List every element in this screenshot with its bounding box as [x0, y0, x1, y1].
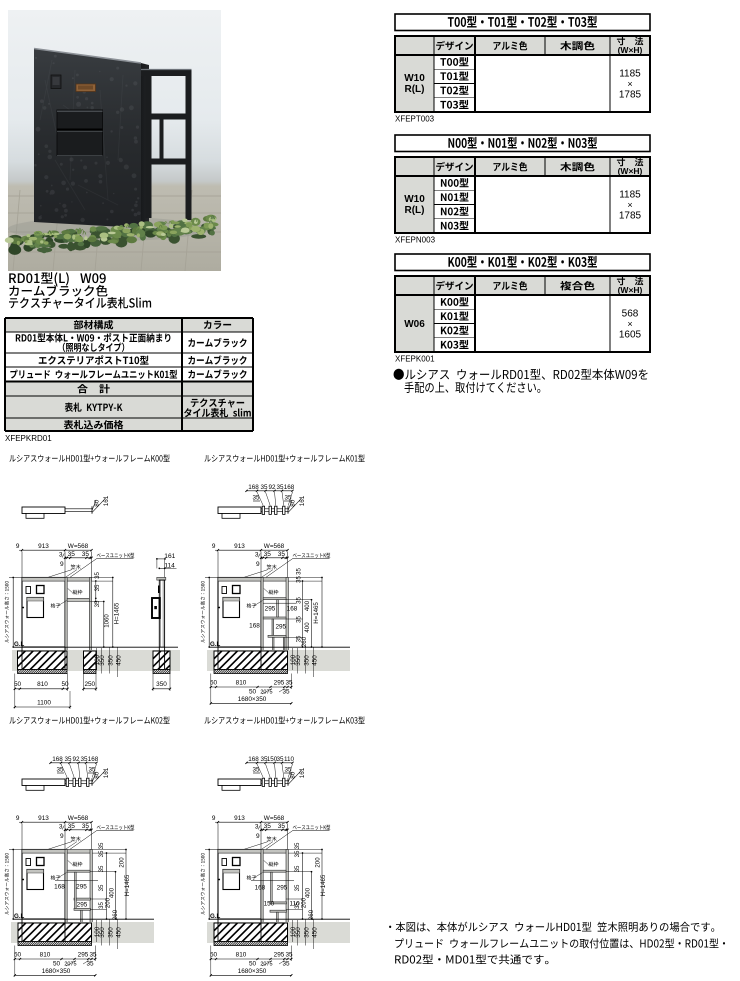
svg-text:161: 161: [299, 767, 306, 778]
svg-text:450: 450: [115, 655, 122, 666]
svg-text:35: 35: [285, 680, 293, 687]
svg-text:35: 35: [82, 823, 90, 830]
svg-text:H=1465: H=1465: [320, 874, 327, 896]
svg-text:350: 350: [303, 927, 310, 938]
svg-text:450: 450: [115, 927, 122, 938]
svg-text:168: 168: [287, 606, 298, 613]
svg-text:810: 810: [37, 681, 48, 688]
svg-text:200: 200: [105, 897, 112, 908]
svg-text:9: 9: [212, 543, 216, 550]
svg-text:35: 35: [294, 842, 301, 849]
svg-text:35: 35: [294, 865, 301, 872]
svg-text:H=1465: H=1465: [124, 874, 131, 896]
svg-text:295: 295: [274, 952, 285, 959]
svg-text:350: 350: [156, 681, 167, 688]
svg-text:35: 35: [86, 961, 94, 968]
svg-text:50: 50: [210, 952, 218, 959]
svg-text:35: 35: [98, 850, 105, 857]
svg-text:161: 161: [103, 495, 110, 506]
svg-text:9: 9: [16, 815, 20, 822]
svg-text:9: 9: [256, 833, 260, 840]
svg-text:913: 913: [38, 815, 49, 822]
svg-text:2075: 2075: [64, 962, 76, 968]
svg-text:(W×H): (W×H): [618, 285, 643, 295]
svg-text:168: 168: [249, 623, 260, 630]
svg-text:161: 161: [299, 495, 306, 506]
svg-text:W=568: W=568: [264, 815, 285, 822]
svg-text:350: 350: [99, 655, 106, 666]
svg-text:50: 50: [14, 952, 22, 959]
svg-text:×: ×: [627, 79, 632, 89]
svg-text:295: 295: [277, 885, 288, 892]
svg-text:400: 400: [304, 622, 311, 633]
svg-text:9: 9: [60, 833, 64, 840]
svg-text:568: 568: [622, 309, 639, 320]
svg-text:G.L: G.L: [14, 641, 25, 648]
svg-text:50: 50: [249, 689, 257, 696]
svg-text:295: 295: [76, 884, 87, 891]
svg-text:913: 913: [234, 815, 245, 822]
svg-text:200: 200: [301, 897, 308, 908]
svg-text:1605: 1605: [619, 330, 642, 341]
svg-text:50: 50: [14, 681, 22, 688]
svg-text:35: 35: [98, 842, 105, 849]
svg-text:35: 35: [64, 756, 72, 763]
svg-text:G.L: G.L: [210, 913, 221, 920]
svg-text:35: 35: [295, 568, 302, 575]
svg-text:260: 260: [301, 636, 308, 647]
svg-text:161: 161: [164, 553, 175, 560]
svg-text:G.L: G.L: [210, 641, 221, 648]
svg-text:1680×350: 1680×350: [238, 696, 267, 703]
svg-text:35: 35: [294, 850, 301, 857]
svg-text:35: 35: [284, 495, 292, 502]
svg-text:350: 350: [99, 927, 106, 938]
svg-text:35: 35: [295, 597, 302, 604]
svg-text:35: 35: [68, 551, 76, 558]
svg-text:400: 400: [305, 887, 312, 898]
svg-text:H=1465: H=1465: [114, 602, 121, 624]
svg-text:35: 35: [278, 551, 286, 558]
svg-text:35: 35: [284, 767, 292, 774]
svg-text:1100: 1100: [37, 700, 51, 707]
svg-text:35: 35: [82, 551, 90, 558]
svg-text:913: 913: [38, 543, 49, 550]
svg-text:200: 200: [119, 857, 126, 868]
svg-text:35: 35: [98, 865, 105, 872]
svg-text:35: 35: [260, 484, 268, 491]
svg-text:1060: 1060: [104, 614, 111, 628]
svg-text:G.L: G.L: [14, 913, 25, 920]
svg-text:450: 450: [311, 655, 318, 666]
svg-text:250: 250: [84, 681, 95, 688]
svg-text:XFEPN003: XFEPN003: [395, 236, 436, 245]
svg-text:2075: 2075: [260, 962, 272, 968]
svg-text:35: 35: [282, 689, 290, 696]
svg-text:(W×H): (W×H): [618, 45, 643, 55]
svg-text:350: 350: [295, 927, 302, 938]
svg-text:35: 35: [264, 823, 272, 830]
svg-text:9: 9: [256, 561, 260, 568]
svg-text:161: 161: [103, 767, 110, 778]
svg-text:200: 200: [315, 857, 322, 868]
svg-text:80: 80: [94, 499, 101, 507]
svg-text:35: 35: [94, 600, 101, 607]
svg-text:35: 35: [295, 616, 302, 623]
svg-text:400: 400: [109, 887, 116, 898]
svg-text:810: 810: [236, 680, 247, 687]
svg-text:35: 35: [88, 767, 96, 774]
svg-text:295: 295: [274, 680, 285, 687]
svg-text:35: 35: [294, 902, 301, 909]
svg-text:W10: W10: [404, 194, 425, 205]
svg-text:350: 350: [107, 655, 114, 666]
svg-text:450: 450: [311, 927, 318, 938]
svg-text:168: 168: [54, 884, 65, 891]
svg-text:35: 35: [98, 884, 105, 891]
svg-text:1785: 1785: [619, 211, 642, 222]
svg-text:35: 35: [94, 572, 101, 579]
svg-text:XFEPKRD01: XFEPKRD01: [5, 434, 52, 443]
svg-text:1185: 1185: [619, 69, 641, 80]
svg-text:R(L): R(L): [405, 84, 425, 95]
svg-text:35: 35: [282, 961, 290, 968]
svg-text:50: 50: [53, 961, 61, 968]
svg-text:XFEPK001: XFEPK001: [395, 355, 435, 364]
svg-text:350: 350: [107, 927, 114, 938]
svg-text:9: 9: [212, 815, 216, 822]
svg-text:295: 295: [77, 902, 88, 909]
svg-text:(W×H): (W×H): [618, 166, 643, 176]
svg-text:H=1465: H=1465: [313, 602, 320, 624]
svg-text:W=568: W=568: [68, 543, 89, 550]
svg-text:50: 50: [249, 961, 257, 968]
svg-text:1680×350: 1680×350: [42, 968, 71, 975]
svg-text:1680×350: 1680×350: [238, 968, 267, 975]
svg-text:35: 35: [94, 584, 101, 591]
svg-text:×: ×: [627, 319, 632, 329]
svg-text:2075: 2075: [260, 690, 272, 696]
svg-text:35: 35: [68, 823, 76, 830]
svg-text:35: 35: [264, 551, 272, 558]
svg-text:XFEPT003: XFEPT003: [395, 115, 435, 124]
svg-text:W06: W06: [404, 319, 425, 330]
svg-text:810: 810: [40, 952, 51, 959]
svg-text:35: 35: [278, 823, 286, 830]
svg-text:50: 50: [210, 680, 218, 687]
svg-text:9: 9: [16, 543, 20, 550]
svg-text:35: 35: [294, 884, 301, 891]
svg-text:35: 35: [285, 952, 293, 959]
svg-text:1785: 1785: [619, 90, 642, 101]
svg-text:810: 810: [236, 952, 247, 959]
svg-text:W10: W10: [404, 73, 425, 84]
svg-text:350: 350: [295, 655, 302, 666]
svg-text:1185: 1185: [619, 190, 641, 201]
svg-text:R(L): R(L): [405, 205, 425, 216]
svg-text:913: 913: [234, 543, 245, 550]
svg-text:295: 295: [265, 606, 276, 613]
svg-text:295: 295: [275, 624, 286, 631]
svg-text:35: 35: [98, 902, 105, 909]
svg-text:W=568: W=568: [68, 815, 89, 822]
svg-text:50: 50: [61, 681, 69, 688]
svg-text:400: 400: [304, 600, 311, 611]
svg-text:295: 295: [78, 952, 89, 959]
svg-text:350: 350: [303, 655, 310, 666]
svg-text:35: 35: [295, 576, 302, 583]
svg-text:35: 35: [89, 952, 97, 959]
svg-text:260: 260: [308, 909, 315, 920]
svg-text:260: 260: [112, 909, 119, 920]
svg-text:9: 9: [60, 561, 64, 568]
svg-text:150: 150: [264, 901, 275, 908]
svg-text:W=568: W=568: [264, 543, 285, 550]
svg-text:168: 168: [255, 885, 266, 892]
svg-text:×: ×: [627, 200, 632, 210]
